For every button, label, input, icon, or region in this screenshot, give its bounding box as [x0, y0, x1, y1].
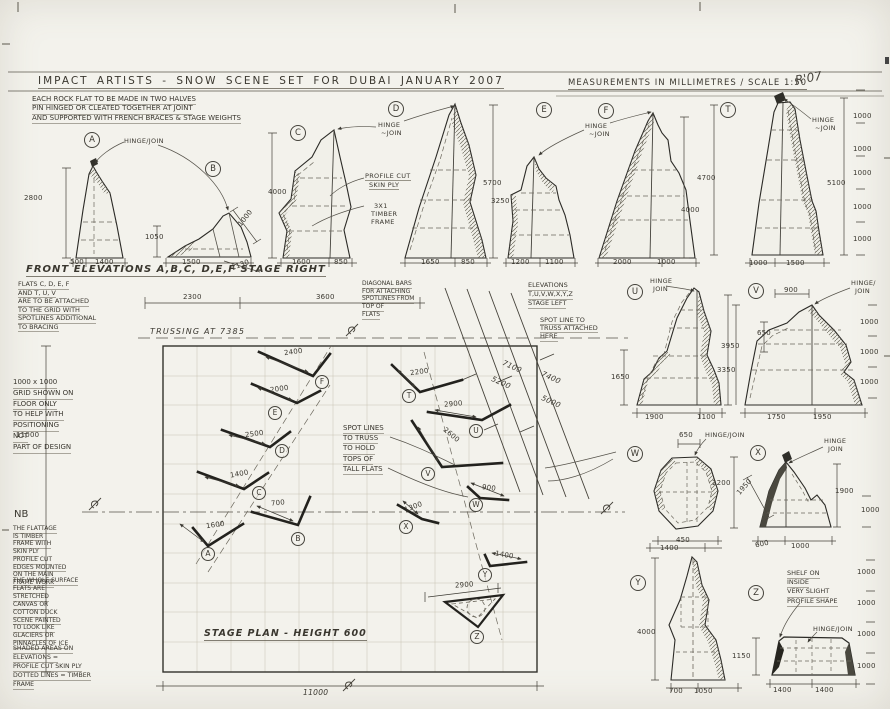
- plan-label-z: Z: [470, 630, 484, 644]
- dim-d-base2: 850: [461, 258, 475, 266]
- dim-plan-v: 2600: [442, 426, 461, 444]
- elev-label-w: W: [627, 446, 643, 462]
- scale-mid-2: 1000: [860, 348, 879, 356]
- dim-z-base2: 1400: [815, 686, 834, 694]
- dim-spotline-4: 5000: [540, 393, 562, 409]
- timber-label-1: 3X1: [374, 202, 388, 210]
- dim-u-base2: 1100: [697, 413, 716, 421]
- dim-span-2: 3600: [316, 293, 335, 301]
- dim-plan-width-bottom: 11000: [303, 688, 328, 697]
- plan-label-b: B: [291, 532, 305, 546]
- dim-e-base1: 1200: [511, 258, 530, 266]
- dim-f-base1: 2000: [613, 258, 632, 266]
- dim-b-height: 1050: [145, 233, 164, 241]
- dim-w-base1: 450: [676, 536, 690, 544]
- dim-u-height: 3950: [721, 342, 740, 350]
- hinge-label-u-2: JOIN: [653, 285, 668, 293]
- dim-plan-t: 2200: [410, 367, 430, 378]
- plan-label-d: D: [275, 444, 289, 458]
- hinge-label-v-1: HINGE/: [851, 279, 876, 287]
- hinge-label-z: HINGE/JOIN: [813, 625, 853, 633]
- dim-c-height: 4000: [268, 188, 287, 196]
- hinge-label-t-1: HINGE: [812, 116, 834, 124]
- dim-f-base2: 1000: [657, 258, 676, 266]
- dim-plan-x: 1300: [403, 500, 423, 514]
- elev-label-v: V: [748, 283, 764, 299]
- dim-plan-u: 2900: [444, 399, 463, 409]
- dim-x-diag: 1950: [735, 477, 753, 496]
- dim-v-base1: 1750: [767, 413, 786, 421]
- hinge-label-ef-1: HINGE: [585, 122, 607, 130]
- scale-mid-1: 1000: [860, 318, 879, 326]
- dim-plan-z: 2900: [455, 580, 474, 589]
- dim-f-height: 4000: [681, 206, 700, 214]
- elev-label-e: E: [536, 102, 552, 118]
- plan-label-t: T: [402, 389, 416, 403]
- elev-label-u: U: [627, 284, 643, 300]
- dim-v-left: 650: [757, 329, 771, 337]
- dim-spotline-1: 7100: [501, 358, 523, 374]
- hinge-label-cd-1: HINGE: [378, 121, 400, 129]
- profile-cut-label-2: SKIN PLY: [369, 181, 399, 190]
- dim-b-diag2: 1130: [230, 258, 250, 272]
- dim-y-base2: 1050: [694, 687, 713, 695]
- scale-mid-3: 1000: [860, 378, 879, 386]
- dim-span-1: 2300: [183, 293, 202, 301]
- scale-top-1: 1000: [853, 112, 872, 120]
- dim-t-height2: 5100: [827, 179, 846, 187]
- plan-label-w: W: [469, 498, 483, 512]
- scale-low-1: 1000: [857, 568, 876, 576]
- scale-top-2: 1000: [853, 145, 872, 153]
- dim-d-height: 5700: [483, 179, 502, 187]
- dim-b-diag1: 1000: [236, 208, 254, 228]
- elev-label-b: B: [205, 161, 221, 177]
- dim-a-base2: 1400: [95, 258, 114, 266]
- scale-x-1: 1000: [861, 506, 880, 514]
- scale-low-4: 1000: [857, 662, 876, 670]
- dim-plan-a: 1600: [206, 520, 226, 531]
- scale-low-3: 1000: [857, 630, 876, 638]
- hinge-label-x-1: HINGE: [824, 437, 846, 445]
- dim-e-base2: 1100: [545, 258, 564, 266]
- elev-label-d: D: [388, 101, 404, 117]
- dim-d-base1: 1650: [421, 258, 440, 266]
- dim-x-base1: 600: [754, 539, 769, 550]
- scale-low-2: 1000: [857, 599, 876, 607]
- dim-a-base1: 500: [70, 258, 84, 266]
- dim-plan-width-left: 11000: [16, 431, 39, 439]
- elev-label-c: C: [290, 125, 306, 141]
- plan-label-a: A: [201, 547, 215, 561]
- annotation-layer: ABCDEFTUVWXYZFEDCABTUVWXYZHINGE/JOINHING…: [0, 0, 890, 709]
- dim-t-base2: 1500: [786, 259, 805, 267]
- dim-w-base2: 1400: [660, 544, 679, 552]
- hinge-label-x-2: JOIN: [828, 445, 843, 453]
- dim-plan-w: 900: [482, 483, 497, 493]
- dim-c-base2: 850: [334, 258, 348, 266]
- dim-e-height: 3250: [491, 197, 510, 205]
- dim-y-height: 4000: [637, 628, 656, 636]
- hinge-label-v-2: JOIN: [855, 287, 870, 295]
- dim-plan-d: 2500: [245, 429, 265, 440]
- dim-b-base: 1500: [182, 258, 201, 266]
- timber-label-3: FRAME: [371, 218, 395, 226]
- hinge-label-ef-2: ~JOIN: [589, 130, 610, 138]
- dim-plan-b: 700: [271, 498, 286, 507]
- dim-plan-c: 1400: [229, 468, 249, 479]
- dim-spotline-3: 7400: [540, 369, 562, 385]
- plan-label-u: U: [469, 424, 483, 438]
- dim-t-base1: 1000: [749, 259, 768, 267]
- dim-v-height: 3350: [717, 366, 736, 374]
- dim-w-top: 650: [679, 431, 693, 439]
- dim-y-base1: 700: [669, 687, 683, 695]
- scale-top-4: 1000: [853, 203, 872, 211]
- timber-label-2: TIMBER: [371, 210, 397, 218]
- dim-x-height: 1900: [835, 487, 854, 495]
- dim-c-base1: 1600: [292, 258, 311, 266]
- dim-x-base2: 1000: [791, 542, 810, 550]
- dim-plan-y: 1400: [494, 549, 514, 560]
- plan-label-y: Y: [478, 568, 492, 582]
- plan-label-x: X: [399, 520, 413, 534]
- dim-v-top: 900: [784, 286, 798, 294]
- plan-label-f: F: [315, 375, 329, 389]
- dim-z-base1: 1400: [773, 686, 792, 694]
- hinge-label-cd-2: ~JOIN: [381, 129, 402, 137]
- dim-v-base2: 1950: [813, 413, 832, 421]
- elev-label-a: A: [84, 132, 100, 148]
- hinge-label-ab: HINGE/JOIN: [124, 137, 164, 145]
- elev-label-y: Y: [630, 575, 646, 591]
- elev-label-z: Z: [748, 585, 764, 601]
- elev-label-f: F: [598, 103, 614, 119]
- scale-top-3: 1000: [853, 169, 872, 177]
- dim-spotline-2: 5200: [490, 374, 512, 390]
- plan-label-e: E: [268, 406, 282, 420]
- drawing-sheet: IMPACT ARTISTS - SNOW SCENE SET FOR DUBA…: [0, 0, 890, 709]
- dim-u-left: 1650: [611, 373, 630, 381]
- scale-top-5: 1000: [853, 235, 872, 243]
- dim-z-height: 1150: [732, 652, 751, 660]
- dim-t-height1: 4700: [697, 174, 716, 182]
- dim-w-height: 2200: [712, 479, 731, 487]
- dim-u-base1: 1900: [645, 413, 664, 421]
- hinge-label-u-1: HINGE: [650, 277, 672, 285]
- elev-label-t: T: [720, 102, 736, 118]
- dim-plan-f: 2400: [284, 347, 304, 358]
- hinge-label-t-2: ~JOIN: [815, 124, 836, 132]
- hinge-label-w: HINGE/JOIN: [705, 431, 745, 439]
- plan-label-v: V: [421, 467, 435, 481]
- elev-label-x: X: [750, 445, 766, 461]
- dim-plan-e: 2000: [270, 384, 290, 395]
- dim-a-height: 2800: [24, 194, 43, 202]
- plan-label-c: C: [252, 486, 266, 500]
- profile-cut-label-1: PROFILE CUT: [365, 172, 411, 181]
